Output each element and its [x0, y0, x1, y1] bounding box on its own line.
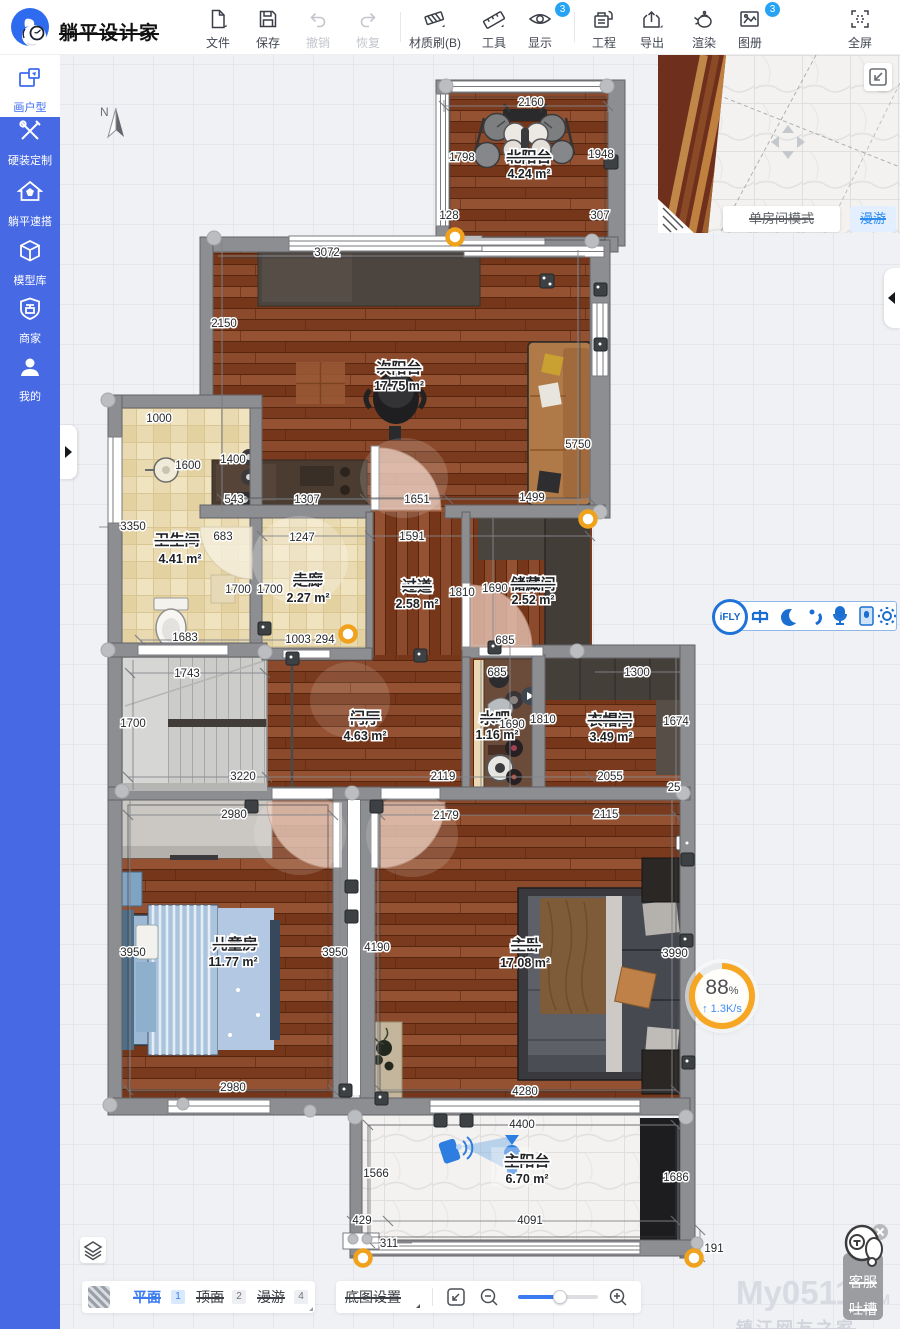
svg-text:5750: 5750: [565, 439, 591, 451]
svg-text:311: 311: [380, 1238, 398, 1250]
svg-text:主阳台: 主阳台: [504, 1152, 549, 1170]
svg-text:1003: 1003: [285, 634, 311, 646]
svg-text:2179: 2179: [433, 810, 459, 822]
svg-text:3072: 3072: [314, 247, 340, 259]
svg-text:543: 543: [224, 494, 243, 506]
svg-text:4.24 m²: 4.24 m²: [507, 167, 550, 181]
svg-text:次阳台: 次阳台: [376, 359, 421, 377]
svg-text:1674: 1674: [663, 716, 689, 728]
svg-text:3350: 3350: [120, 521, 146, 533]
svg-text:1400: 1400: [220, 454, 246, 466]
svg-text:1690: 1690: [499, 719, 525, 731]
svg-text:2115: 2115: [594, 809, 619, 821]
svg-text:191: 191: [704, 1243, 723, 1255]
svg-text:1810: 1810: [530, 714, 556, 726]
svg-text:25: 25: [668, 782, 681, 794]
svg-text:1600: 1600: [175, 460, 201, 472]
svg-text:3950: 3950: [120, 947, 146, 959]
svg-text:1798: 1798: [449, 152, 475, 164]
svg-text:1247: 1247: [289, 532, 315, 544]
svg-text:2119: 2119: [431, 771, 456, 783]
svg-text:4.41 m²: 4.41 m²: [158, 552, 201, 566]
svg-text:主卧: 主卧: [511, 936, 541, 954]
svg-text:3220: 3220: [230, 771, 256, 783]
svg-text:685: 685: [487, 667, 506, 679]
svg-text:2055: 2055: [597, 771, 623, 783]
svg-text:3.49 m²: 3.49 m²: [589, 730, 632, 744]
svg-text:2.58 m²: 2.58 m²: [395, 597, 438, 611]
svg-text:17.08 m²: 17.08 m²: [500, 956, 550, 970]
svg-text:307: 307: [590, 210, 609, 222]
svg-text:1683: 1683: [172, 632, 198, 644]
svg-text:1686: 1686: [663, 1172, 689, 1184]
svg-text:2.27 m²: 2.27 m²: [286, 591, 329, 605]
svg-text:2150: 2150: [211, 318, 237, 330]
svg-text:2.52 m²: 2.52 m²: [511, 593, 554, 607]
svg-text:4400: 4400: [509, 1119, 535, 1131]
svg-text:4280: 4280: [512, 1086, 538, 1098]
svg-text:17.75 m²: 17.75 m²: [374, 379, 424, 393]
svg-text:儿童房: 儿童房: [211, 935, 257, 953]
svg-text:294: 294: [315, 634, 335, 646]
svg-text:1591: 1591: [399, 531, 425, 543]
svg-text:2980: 2980: [220, 1082, 246, 1094]
svg-text:1700: 1700: [120, 718, 146, 730]
svg-text:1651: 1651: [404, 494, 430, 506]
svg-text:1700: 1700: [225, 584, 251, 596]
svg-text:685: 685: [495, 635, 514, 647]
svg-text:衣帽间: 衣帽间: [587, 711, 632, 729]
svg-text:4091: 4091: [517, 1215, 543, 1227]
svg-text:3950: 3950: [322, 947, 348, 959]
svg-text:4.63 m²: 4.63 m²: [343, 729, 386, 743]
svg-text:1700: 1700: [257, 584, 283, 596]
svg-text:128: 128: [439, 210, 458, 222]
svg-text:门厅: 门厅: [350, 709, 380, 727]
svg-text:走廊: 走廊: [293, 571, 323, 589]
svg-text:683: 683: [213, 531, 232, 543]
svg-text:4190: 4190: [364, 942, 390, 954]
svg-text:过道: 过道: [402, 577, 432, 595]
svg-text:429: 429: [352, 1215, 371, 1227]
svg-text:1300: 1300: [624, 667, 650, 679]
svg-text:1499: 1499: [519, 492, 545, 504]
svg-text:1690: 1690: [482, 583, 508, 595]
svg-text:6.70 m²: 6.70 m²: [505, 1172, 548, 1186]
svg-text:1743: 1743: [174, 668, 200, 680]
svg-text:储藏间: 储藏间: [510, 575, 555, 593]
svg-text:N: N: [100, 105, 109, 119]
svg-text:1000: 1000: [146, 413, 172, 425]
svg-text:北阳台: 北阳台: [506, 148, 551, 166]
svg-text:1948: 1948: [588, 149, 614, 161]
svg-text:2980: 2980: [221, 809, 247, 821]
svg-text:1307: 1307: [294, 494, 320, 506]
svg-text:卫生间: 卫生间: [154, 531, 199, 549]
svg-text:2160: 2160: [518, 97, 544, 109]
svg-text:11.77 m²: 11.77 m²: [208, 955, 257, 969]
svg-text:1566: 1566: [363, 1168, 389, 1180]
svg-text:1810: 1810: [449, 587, 475, 599]
svg-text:3990: 3990: [662, 948, 688, 960]
